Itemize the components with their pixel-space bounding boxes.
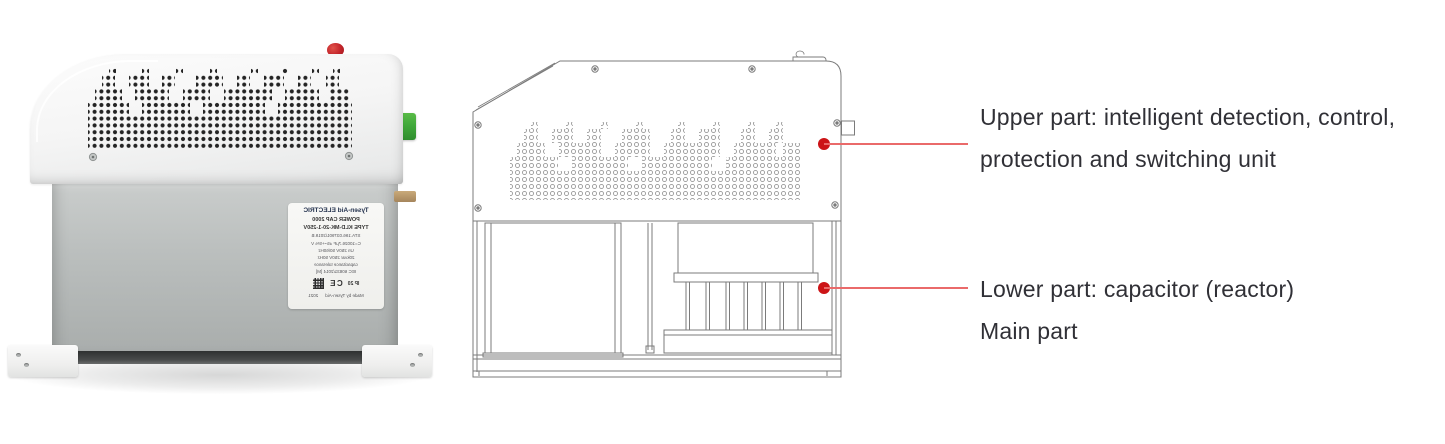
drawing-ventilation-grid bbox=[510, 122, 801, 200]
brand-line: Tysen-Aid ELECTRIC bbox=[303, 207, 368, 215]
annotation-lower-line2: Main part bbox=[980, 310, 1445, 352]
drawing-reactor bbox=[664, 221, 836, 355]
certification-row: IP 20 CE bbox=[313, 278, 360, 289]
ce-mark: CE bbox=[329, 279, 343, 289]
drawing-base-plate bbox=[473, 355, 841, 376]
technical-drawing bbox=[465, 50, 860, 390]
product-photo: Tysen-Aid ELECTRIC POWER CAP 2000 TYPE K… bbox=[0, 0, 460, 444]
year: 2021 bbox=[308, 293, 318, 299]
screw-hole bbox=[24, 363, 29, 367]
drawing-outline bbox=[473, 51, 855, 377]
annotation-upper-line2: protection and switching unit bbox=[980, 138, 1445, 180]
label-line: 20kvar 250V 50Hz bbox=[317, 255, 354, 261]
side-terminal bbox=[394, 191, 416, 202]
drawing-capacitor-box bbox=[477, 221, 623, 372]
qr-code bbox=[313, 278, 324, 289]
screw-hole bbox=[418, 353, 423, 357]
annotation-upper-part: Upper part: intelligent detection, contr… bbox=[980, 96, 1445, 180]
screw-hole bbox=[16, 353, 21, 357]
nameplate-label: Tysen-Aid ELECTRIC POWER CAP 2000 TYPE K… bbox=[288, 203, 384, 309]
label-line: STA.196.037901/2019.B bbox=[312, 233, 361, 239]
callout-line-lower bbox=[824, 287, 968, 289]
label-line: C=10026.7μF ±5~+5% V bbox=[311, 241, 361, 247]
housing-screws bbox=[89, 152, 352, 160]
made-by: Made by Tysen-Aid bbox=[325, 293, 363, 299]
figure-canvas: Tysen-Aid ELECTRIC POWER CAP 2000 TYPE K… bbox=[0, 0, 1445, 444]
ventilation-hole-grid bbox=[30, 54, 403, 184]
nameplate-text-mirrored: Tysen-Aid ELECTRIC POWER CAP 2000 TYPE K… bbox=[292, 207, 380, 305]
annotation-lower-part: Lower part: capacitor (reactor) Main par… bbox=[980, 268, 1445, 352]
mounting-foot-left bbox=[8, 345, 78, 377]
callout-line-upper bbox=[824, 143, 968, 145]
green-terminal-connector bbox=[401, 113, 416, 140]
detection-unit-housing bbox=[30, 54, 403, 184]
annotation-upper-line1: Upper part: intelligent detection, contr… bbox=[980, 96, 1445, 138]
base-slot-shadow bbox=[70, 351, 370, 364]
label-line: POWER CAP 2000 bbox=[312, 217, 360, 224]
mounting-foot-right bbox=[362, 345, 432, 377]
label-line: TYPE KLD-MK-20-1-250V bbox=[303, 225, 368, 232]
drawing-divider-wall bbox=[646, 223, 654, 353]
label-footer: Made by Tysen-Aid 2021 bbox=[308, 293, 363, 299]
ip-rating: IP 20 bbox=[348, 281, 360, 287]
screw-hole bbox=[410, 363, 415, 367]
label-line: IEC 60831/2014 [M] bbox=[316, 269, 356, 275]
annotation-lower-line1: Lower part: capacitor (reactor) bbox=[980, 268, 1445, 310]
label-line: Un 250V 50/60Hz bbox=[318, 248, 354, 254]
label-line: capacitance tolerance bbox=[314, 262, 358, 268]
